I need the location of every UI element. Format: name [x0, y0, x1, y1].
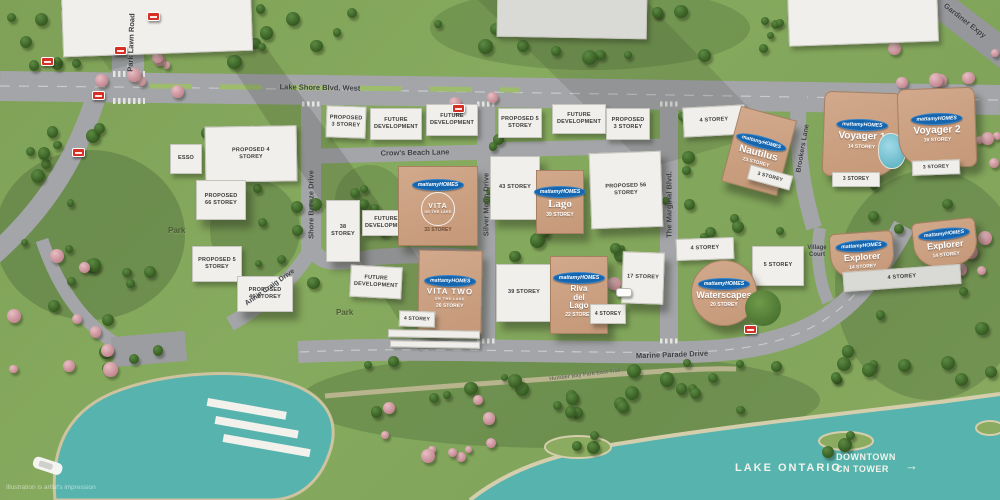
tree-icon [277, 255, 286, 264]
tree-icon [256, 4, 265, 13]
tree-icon [122, 268, 132, 278]
lake-ontario-label: LAKE ONTARIO [735, 462, 842, 474]
tree-icon [771, 361, 782, 372]
tree-icon [434, 20, 442, 28]
tree-icon [625, 386, 640, 401]
tree-icon [129, 354, 139, 364]
road-label-village-court: Village Court [799, 245, 835, 259]
tree-icon [72, 59, 81, 68]
blossom-tree-icon [171, 85, 184, 98]
tree-icon [590, 431, 599, 440]
building-top-right [787, 0, 939, 47]
road-label-silver-moon: Silver Moon Drive [482, 155, 491, 255]
mattamy-logo: mattamyHOMES [534, 186, 586, 198]
mattamy-logo: mattamyHOMES [553, 272, 605, 284]
tree-icon [333, 28, 341, 36]
tree-icon [736, 360, 744, 368]
blossom-tree-icon [483, 412, 495, 424]
disclaimer-text: Illustration is artist's impression [6, 484, 96, 491]
proposed-5-storey-b: PROPOSED 5 STOREY [498, 108, 542, 138]
blossom-tree-icon [383, 402, 395, 414]
blossom-tree-icon [79, 262, 90, 273]
vita-building: mattamyHOMES VITA ON THE LAKE 33 STOREY [398, 166, 478, 246]
mattamy-logo: mattamyHOMES [698, 278, 750, 290]
tree-icon [698, 49, 711, 62]
building-top-left [61, 0, 253, 57]
tree-icon [464, 382, 478, 396]
tree-icon [624, 51, 632, 59]
tree-icon [898, 359, 911, 372]
downtown-label-line2: CN TOWER [836, 464, 889, 475]
road-label-marginal: The Marginal Blvd. [665, 155, 674, 255]
tree-icon [565, 406, 576, 417]
tree-icon [868, 211, 879, 222]
tree-icon [478, 39, 493, 54]
tree-icon [260, 26, 274, 40]
tree-icon [102, 314, 114, 326]
tree-icon [551, 46, 560, 55]
voyager2-podium: 3 STOREY [912, 159, 960, 176]
tower-39-storey: 39 STOREY [496, 264, 552, 322]
blossom-tree-icon [486, 438, 496, 448]
tower-38-storey: 38 STOREY [326, 200, 360, 262]
tree-icon [292, 225, 303, 236]
downtown-arrow-icon: → [905, 458, 918, 473]
tree-icon [587, 441, 600, 454]
blossom-tree-icon [962, 72, 974, 84]
tree-icon [67, 199, 74, 206]
blossom-tree-icon [896, 77, 908, 89]
tree-icon [48, 300, 60, 312]
blossom-tree-icon [448, 448, 457, 457]
proposed-5-storey-west: PROPOSED 5 STOREY [192, 246, 242, 282]
traffic-signal-icon [41, 57, 54, 66]
park-label-center: Park [336, 308, 353, 317]
tree-icon [674, 5, 687, 18]
tree-icon [310, 40, 322, 52]
tree-icon [776, 19, 784, 27]
tree-icon [842, 345, 855, 358]
future-development-1: FUTURE DEVELOPMENT [370, 108, 422, 140]
tree-icon [443, 391, 451, 399]
proposed-4-storey: PROPOSED 4 STOREY [205, 125, 298, 183]
tree-icon [388, 356, 399, 367]
lago-building: mattamyHOMES Lago 39 STOREY [536, 170, 584, 234]
tree-icon [610, 243, 621, 254]
tree-icon [429, 393, 439, 403]
tree-icon [683, 359, 691, 367]
blossom-tree-icon [993, 132, 1000, 140]
vita-two-4-storey: 4 STOREY [399, 310, 436, 327]
blossom-tree-icon [103, 362, 118, 377]
building-top-center [497, 0, 648, 39]
tree-icon [144, 266, 156, 278]
courtyard-green [745, 290, 781, 326]
waterscapes-5-storey: 5 STOREY [752, 246, 804, 286]
tree-icon [759, 44, 768, 53]
tree-icon [553, 401, 562, 410]
riva-4-storey: 4 STOREY [590, 304, 626, 324]
tree-icon [253, 184, 261, 192]
tree-icon [501, 374, 508, 381]
tree-icon [47, 126, 59, 138]
blossom-tree-icon [381, 431, 389, 439]
traffic-signal-icon [744, 325, 757, 334]
tree-icon [652, 7, 663, 18]
tree-icon [684, 199, 695, 210]
voyager1-podium: 3 STOREY [832, 172, 880, 187]
blossom-tree-icon [888, 42, 901, 55]
tree-icon [942, 199, 953, 210]
waterscapes-4-storey: 4 STOREY [676, 237, 735, 261]
mattamy-logo: mattamyHOMES [412, 179, 464, 191]
tree-icon [708, 373, 718, 383]
tree-icon [985, 366, 997, 378]
tree-icon [54, 57, 61, 64]
tree-icon [530, 233, 545, 248]
tree-icon [53, 141, 61, 149]
proposed-3-storey-a: PROPOSED 3 STOREY [325, 105, 366, 138]
tree-icon [126, 279, 134, 287]
traffic-signal-icon [92, 91, 105, 100]
tree-icon [517, 40, 529, 52]
traffic-signal-icon [147, 12, 160, 21]
tree-icon [38, 147, 51, 160]
site-plan-map: ESSO PROPOSED 4 STOREY PROPOSED 66 STORE… [0, 0, 1000, 500]
car-icon [616, 288, 632, 297]
tree-icon [489, 142, 498, 151]
blossom-tree-icon [95, 74, 108, 87]
blossom-tree-icon [101, 344, 115, 358]
tree-icon [838, 438, 852, 452]
esso-station: ESSO [170, 144, 202, 174]
proposed-66-storey: PROPOSED 66 STOREY [196, 180, 246, 220]
tree-icon [682, 166, 691, 175]
blossom-tree-icon [487, 92, 498, 103]
blossom-tree-icon [473, 395, 483, 405]
traffic-signal-icon [72, 148, 85, 157]
mattamy-logo: mattamyHOMES [424, 275, 477, 288]
townhouse-row [388, 329, 480, 339]
road-label-shore-breeze: Shore Breeze Drive [307, 155, 316, 255]
tree-icon [767, 32, 774, 39]
tree-icon [831, 372, 842, 383]
future-development-5: FUTURE DEVELOPMENT [349, 265, 403, 300]
blossom-tree-icon [421, 449, 435, 463]
downtown-label-line1: DOWNTOWN [836, 452, 896, 463]
traffic-signal-icon [452, 104, 465, 113]
blossom-tree-icon [929, 73, 943, 87]
tree-icon [876, 310, 886, 320]
tree-icon [286, 12, 300, 26]
tree-icon [371, 406, 383, 418]
traffic-signal-icon [114, 46, 127, 55]
blossom-tree-icon [981, 132, 994, 145]
tree-icon [7, 13, 16, 22]
blossom-tree-icon [50, 249, 64, 263]
tower-43-storey: 43 STOREY [490, 156, 540, 220]
tree-icon [955, 373, 968, 386]
proposed-56-storey: PROPOSED 56 STOREY [589, 151, 664, 229]
tree-icon [29, 60, 40, 71]
vita-logo: VITA ON THE LAKE [421, 192, 455, 226]
tree-icon [509, 251, 520, 262]
proposed-3-storey-b: PROPOSED 3 STOREY [606, 108, 650, 140]
voyager2-building: mattamyHOMES Voyager 2 16 STOREY [897, 87, 978, 170]
tree-icon [736, 406, 745, 415]
tree-icon [846, 431, 855, 440]
tree-icon [227, 55, 241, 69]
blossom-tree-icon [7, 309, 21, 323]
future-development-4: FUTURE DEVELOPMENT [552, 104, 606, 134]
tree-icon [975, 322, 989, 336]
tree-icon [732, 221, 744, 233]
park-label-west: Park [168, 226, 185, 235]
